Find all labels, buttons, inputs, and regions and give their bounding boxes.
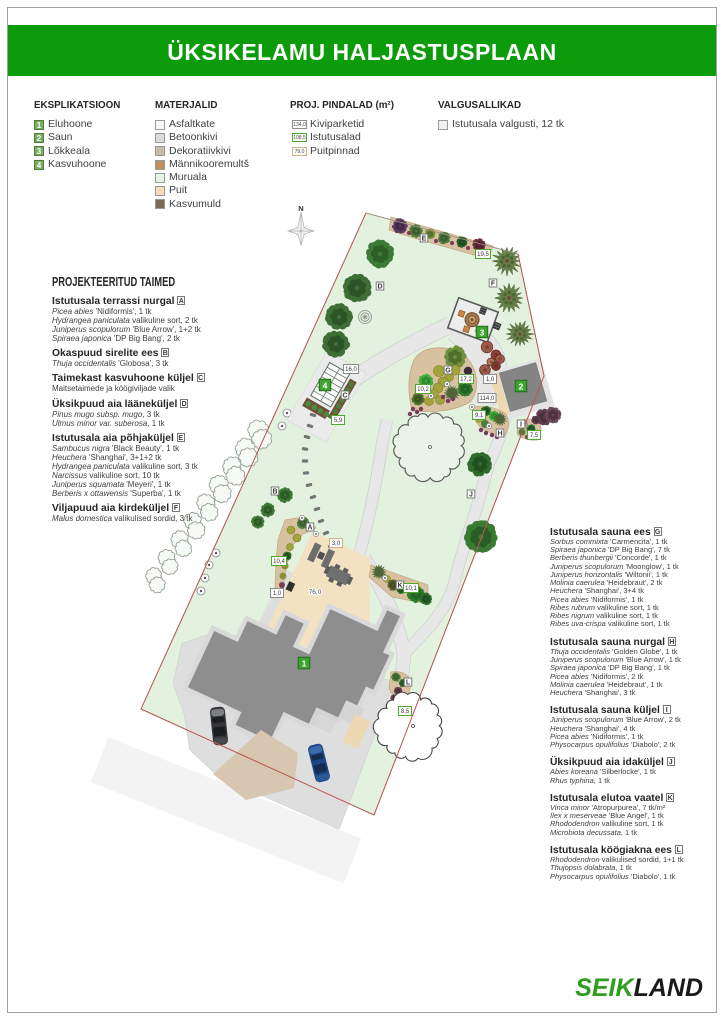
svg-text:2: 2 (519, 382, 524, 392)
svg-text:J: J (469, 492, 473, 499)
svg-text:H: H (497, 431, 502, 438)
svg-text:C: C (342, 393, 347, 400)
svg-text:1: 1 (302, 659, 307, 669)
svg-text:D: D (377, 284, 382, 291)
svg-text:E: E (422, 236, 427, 243)
svg-text:3: 3 (480, 328, 485, 338)
svg-text:3,0: 3,0 (332, 541, 341, 547)
svg-text:4: 4 (323, 381, 328, 391)
svg-text:17,2: 17,2 (460, 377, 472, 383)
svg-text:10,4: 10,4 (273, 559, 285, 565)
svg-text:1,0: 1,0 (486, 377, 495, 383)
svg-text:7,5: 7,5 (530, 433, 539, 439)
svg-text:10,2: 10,2 (417, 387, 429, 393)
svg-text:K: K (397, 583, 402, 590)
svg-text:19,5: 19,5 (477, 252, 489, 258)
svg-text:L: L (406, 680, 411, 687)
svg-text:F: F (491, 281, 496, 288)
svg-text:9,1: 9,1 (475, 413, 484, 419)
svg-text:1,0: 1,0 (273, 591, 282, 597)
svg-text:16,0: 16,0 (345, 367, 357, 373)
svg-text:10,1: 10,1 (405, 586, 417, 592)
svg-text:G: G (445, 368, 451, 375)
svg-text:B: B (272, 489, 277, 496)
svg-text:114,0: 114,0 (480, 396, 495, 402)
svg-text:5,9: 5,9 (334, 418, 343, 424)
svg-text:N: N (298, 204, 303, 213)
svg-text:8,5: 8,5 (401, 709, 410, 715)
svg-text:I: I (520, 422, 522, 429)
svg-text:A: A (307, 525, 312, 532)
svg-text:76,0: 76,0 (309, 589, 322, 596)
